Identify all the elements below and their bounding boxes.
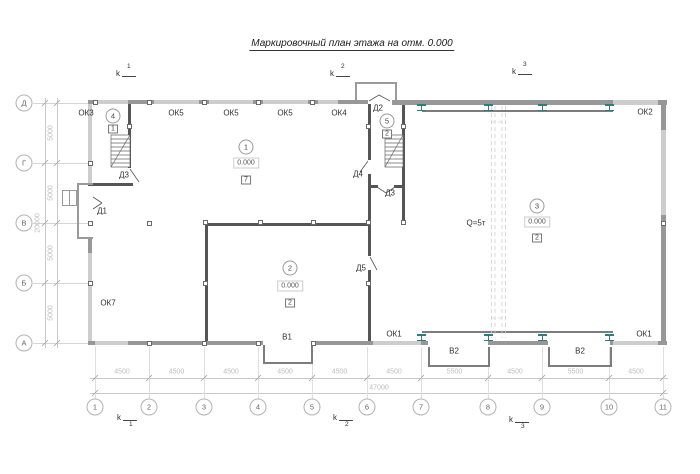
grid-column-bubble: 10 xyxy=(601,399,618,416)
room-elevation-label: 0.000 xyxy=(524,217,550,228)
wall-segment xyxy=(154,100,199,104)
floor-type-badge: 7 xyxy=(241,176,251,185)
grid-row-bubble: Б xyxy=(16,275,33,292)
dimension-label: 4500 xyxy=(223,369,239,376)
floor-type-badge: 2 xyxy=(532,234,542,243)
door-label: Д3 xyxy=(385,189,395,198)
pier-marker xyxy=(258,220,263,225)
section-mark: k2 xyxy=(327,62,357,86)
gate-leaf xyxy=(610,347,612,367)
pier-marker xyxy=(256,341,261,346)
steel-column-icon xyxy=(605,104,614,111)
grid-column-bubble: 4 xyxy=(250,399,267,416)
window-label: ОК7 xyxy=(100,299,115,308)
gate-leaf xyxy=(488,347,490,367)
section-mark-text: k xyxy=(330,69,334,78)
door-leaf-icon xyxy=(369,95,390,101)
dimension-label: 4500 xyxy=(628,369,644,376)
grid-column-bubble: 7 xyxy=(413,399,430,416)
wall-segment xyxy=(661,100,666,130)
grid-column-bubble: 9 xyxy=(534,399,551,416)
section-mark-text: k xyxy=(509,415,513,424)
wall-segment xyxy=(205,223,371,226)
grid-extension-line xyxy=(258,347,259,399)
dimension-label: 4500 xyxy=(386,369,402,376)
pier-marker xyxy=(88,281,93,286)
gate-leaf xyxy=(548,347,550,367)
wall-segment xyxy=(95,100,128,104)
door-label: Д3 xyxy=(119,171,129,180)
grid-extension-line xyxy=(367,347,368,399)
room-number-bubble: 4 xyxy=(106,109,121,124)
pier-marker xyxy=(366,281,371,286)
window-label: ОК3 xyxy=(78,109,93,118)
wall-segment xyxy=(263,100,308,104)
section-mark-line xyxy=(122,76,136,77)
gate-leaf xyxy=(548,365,612,367)
wall-segment xyxy=(661,215,666,345)
dimension-line-total xyxy=(90,393,668,394)
steel-column-icon xyxy=(484,104,493,111)
room-number-bubble: 2 xyxy=(283,261,298,276)
window-label: ОК1 xyxy=(636,330,651,339)
pier-marker xyxy=(88,161,93,166)
pier-marker xyxy=(401,220,406,225)
door-label: Д2 xyxy=(373,104,383,113)
pier-marker xyxy=(661,221,666,226)
wall-segment xyxy=(368,185,378,188)
dimension-label: 5000 xyxy=(48,185,55,201)
section-mark-text: 2 xyxy=(341,63,345,70)
grid-row-bubble: Г xyxy=(16,155,33,172)
grid-row-bubble: В xyxy=(16,215,33,232)
door-leaf-icon xyxy=(370,257,377,270)
dimension-label: 5000 xyxy=(48,245,55,261)
gate-leaf xyxy=(428,365,490,367)
room-number-bubble: 5 xyxy=(380,114,395,129)
grid-column-bubble: 1 xyxy=(87,399,104,416)
steel-column-icon xyxy=(538,104,547,111)
wall-segment xyxy=(394,185,405,188)
gate-label: В1 xyxy=(282,333,292,342)
window-label: ОК2 xyxy=(637,108,652,117)
crane-rail xyxy=(422,331,613,333)
dimension-label: 4500 xyxy=(114,369,130,376)
grid-extension-line xyxy=(542,347,543,399)
grid-extension-line xyxy=(33,343,88,344)
plan-title: Маркировочный план этажа на отм. 0.000 xyxy=(249,38,454,51)
gate-leaf xyxy=(263,362,313,364)
section-mark-text: 3 xyxy=(523,61,527,68)
gate-label: В2 xyxy=(575,347,585,356)
section-mark-text: k xyxy=(117,413,121,422)
section-mark-text: 1 xyxy=(127,63,131,70)
door-leaf-icon xyxy=(130,169,139,182)
dimension-label: 5000 xyxy=(48,305,55,321)
steel-column-part xyxy=(605,110,614,112)
section-mark-line xyxy=(336,76,350,77)
dimension-total-label: 47000 xyxy=(369,385,388,392)
section-mark: k3 xyxy=(509,60,539,84)
steel-column-icon xyxy=(484,334,493,341)
pier-marker xyxy=(147,221,152,226)
pier-marker xyxy=(93,100,98,105)
grid-column-bubble: 5 xyxy=(304,399,321,416)
gate-leaf xyxy=(428,347,430,367)
section-mark-text: k xyxy=(333,413,337,422)
gate-label: В2 xyxy=(449,347,459,356)
pier-marker xyxy=(202,341,207,346)
wall-segment xyxy=(613,100,658,105)
pier-marker xyxy=(203,220,208,225)
window-label: ОК4 xyxy=(331,109,346,118)
grid-extension-line xyxy=(33,163,88,164)
grid-column-bubble: 11 xyxy=(655,399,672,416)
section-mark: k2 xyxy=(330,408,360,432)
grid-extension-line xyxy=(663,347,664,399)
door-label: Д5 xyxy=(356,264,366,273)
wall-segment xyxy=(209,100,253,104)
window-label: ОК5 xyxy=(223,109,238,118)
pier-marker xyxy=(147,341,152,346)
grid-extension-line xyxy=(204,347,205,399)
wall-segment xyxy=(318,100,338,104)
grid-extension-line xyxy=(33,283,88,284)
floor-plan-canvas: Маркировочный план этажа на отм. 0.000 1… xyxy=(0,0,700,474)
crane-runway-dashes xyxy=(491,106,506,338)
wall-segment xyxy=(88,183,133,186)
wall-segment xyxy=(373,341,421,345)
steel-column-part xyxy=(538,340,547,342)
pier-marker xyxy=(311,220,316,225)
dimension-label: 5500 xyxy=(447,369,463,376)
steel-column-icon xyxy=(605,334,614,341)
section-mark: k3 xyxy=(506,410,536,434)
dimension-label: 5500 xyxy=(568,369,584,376)
door-label: Д4 xyxy=(353,170,363,179)
door-label: Д1 xyxy=(97,207,107,216)
pier-marker xyxy=(203,281,208,286)
pier-marker xyxy=(256,100,261,105)
wall-segment xyxy=(79,183,93,185)
steel-column-icon xyxy=(538,334,547,341)
wall-segment xyxy=(88,239,92,253)
room-elevation-label: 0.000 xyxy=(277,281,303,292)
wall-segment xyxy=(613,341,658,345)
dimension-total-label: 20000 xyxy=(35,213,42,232)
floor-type-badge: 2 xyxy=(285,299,295,308)
window-label: ОК1 xyxy=(386,330,401,339)
section-mark-text: k xyxy=(512,67,516,76)
steel-column-icon xyxy=(417,104,426,111)
gate-leaf xyxy=(311,345,313,364)
wall-segment xyxy=(402,105,405,223)
wall-segment xyxy=(88,253,92,341)
room-elevation-label: 0.000 xyxy=(233,158,259,169)
pier-marker xyxy=(202,100,207,105)
wall-segment xyxy=(661,130,666,215)
floor-type-badge: 1 xyxy=(108,125,118,134)
section-mark: k1 xyxy=(113,62,143,86)
wall-segment xyxy=(368,104,371,160)
grid-row-bubble: А xyxy=(16,335,33,352)
stair-icon xyxy=(385,135,403,167)
wall-segment xyxy=(69,191,70,205)
grid-extension-line xyxy=(421,347,422,399)
dimension-label: 4500 xyxy=(507,369,523,376)
wall-segment xyxy=(128,104,131,168)
grid-column-bubble: 6 xyxy=(359,399,376,416)
wall-segment xyxy=(313,341,373,345)
window-label: ОК5 xyxy=(168,109,183,118)
pier-marker xyxy=(401,124,406,129)
dimension-label: 4500 xyxy=(277,369,293,376)
stair-icon xyxy=(385,135,403,167)
grid-column-bubble: 8 xyxy=(480,399,497,416)
steel-column-icon xyxy=(417,334,426,341)
room-number-bubble: 3 xyxy=(530,199,545,214)
pier-marker xyxy=(310,100,315,105)
steel-column-part xyxy=(605,340,614,342)
grid-column-bubble: 3 xyxy=(196,399,213,416)
wall-segment xyxy=(488,341,548,345)
grid-row-bubble: Д xyxy=(16,95,33,112)
dimension-label: 4500 xyxy=(169,369,185,376)
wall-segment xyxy=(355,82,397,84)
wall-segment xyxy=(338,100,368,104)
window-label: ОК5 xyxy=(277,109,292,118)
floor-type-badge: 2 xyxy=(382,130,392,139)
steel-column-part xyxy=(417,340,426,342)
section-mark: k1 xyxy=(114,408,144,432)
pier-marker xyxy=(366,124,371,129)
steel-column-part xyxy=(484,340,493,342)
dimension-label: 5000 xyxy=(48,125,55,141)
steel-column-part xyxy=(538,110,547,112)
crane-capacity-label: Q=5т xyxy=(466,219,485,228)
steel-column-part xyxy=(484,110,493,112)
section-mark-text: k xyxy=(116,69,120,78)
dimension-label: 4500 xyxy=(332,369,348,376)
dimension-line xyxy=(90,378,668,379)
pier-marker xyxy=(147,100,152,105)
section-mark-text: 1 xyxy=(129,421,133,428)
wall-segment xyxy=(395,82,397,100)
section-mark-text: 2 xyxy=(345,421,349,428)
pier-marker xyxy=(311,341,316,346)
grid-extension-line xyxy=(149,347,150,399)
wall-segment xyxy=(79,237,93,239)
section-mark-line xyxy=(518,74,532,75)
room-number-bubble: 1 xyxy=(239,140,254,155)
wall-segment xyxy=(88,341,95,345)
steel-column-part xyxy=(417,110,426,112)
wall-segment xyxy=(77,183,79,239)
grid-extension-line xyxy=(95,347,96,399)
pier-marker xyxy=(127,124,132,129)
wall-segment xyxy=(421,341,428,345)
section-mark-text: 3 xyxy=(521,423,525,430)
grid-extension-line xyxy=(33,103,88,104)
wall-segment xyxy=(95,341,128,345)
pier-marker xyxy=(366,220,371,225)
pier-marker xyxy=(88,221,93,226)
dimension-tick xyxy=(42,100,666,396)
crane-rail xyxy=(422,110,613,112)
